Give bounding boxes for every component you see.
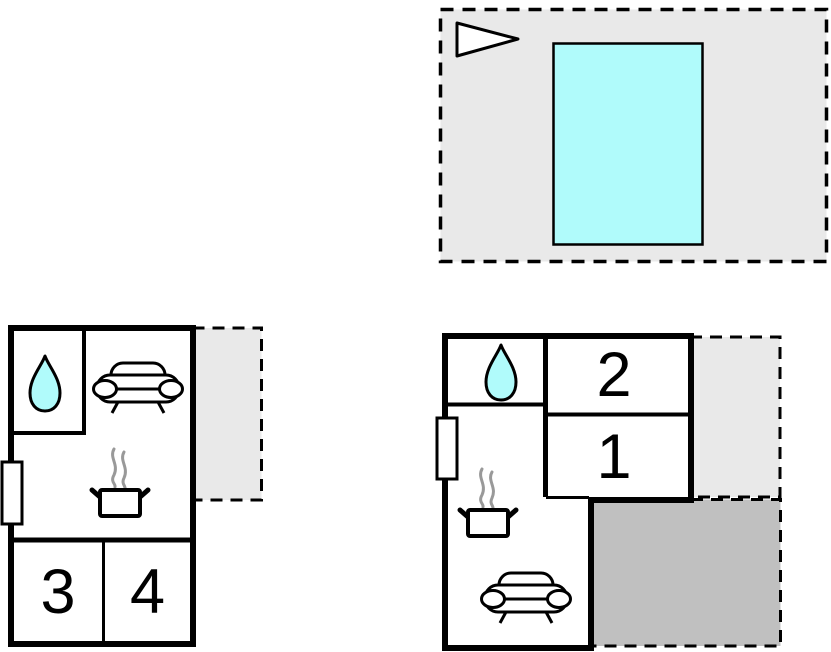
floor-plan-right: 2 1 xyxy=(437,336,781,648)
floorplan-canvas: 3 4 2 1 xyxy=(0,0,831,652)
terrace-upper xyxy=(690,337,780,497)
bedroom-4-label: 4 xyxy=(130,557,165,627)
site-plan xyxy=(441,10,827,262)
floorplan-drawing: 3 4 2 1 xyxy=(0,0,831,652)
window-door xyxy=(2,462,22,524)
bedroom-1-label: 1 xyxy=(596,422,631,492)
bedroom-3-label: 3 xyxy=(40,557,75,627)
bedroom-2-label: 2 xyxy=(596,340,631,410)
swimming-pool xyxy=(554,44,703,245)
floor-plan-left: 3 4 xyxy=(2,328,262,644)
terrace-lower xyxy=(591,500,781,647)
window-door xyxy=(437,418,457,479)
terrace xyxy=(193,328,262,500)
